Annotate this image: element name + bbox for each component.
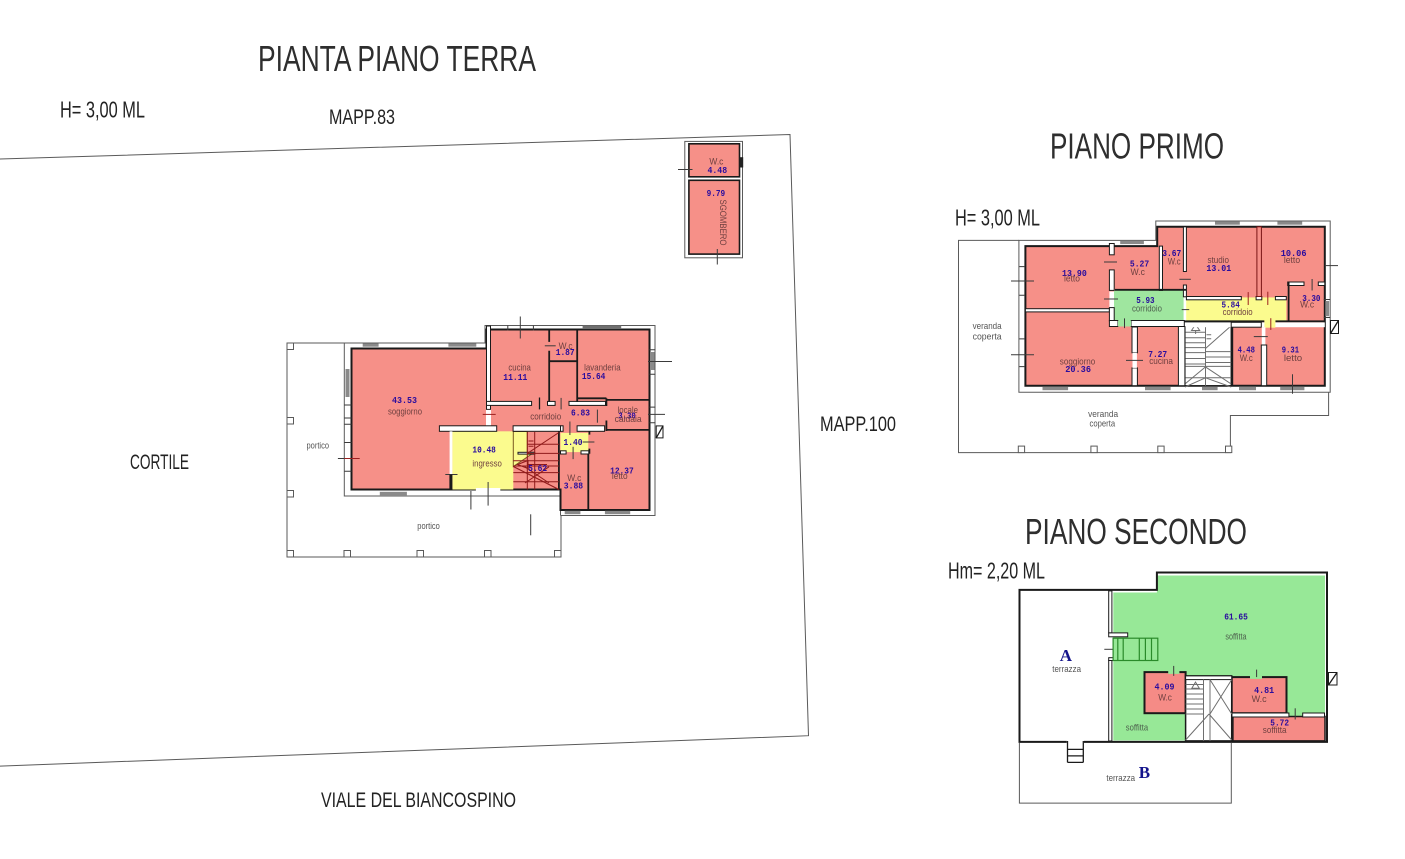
svg-text:1.87: 1.87 xyxy=(556,348,575,358)
svg-text:cucina: cucina xyxy=(508,362,531,373)
svg-text:H= 3,00 ML: H= 3,00 ML xyxy=(955,205,1040,231)
svg-text:veranda: veranda xyxy=(973,321,1003,332)
svg-text:W.c: W.c xyxy=(1168,256,1181,267)
svg-text:letto: letto xyxy=(1064,274,1080,285)
svg-text:13.01: 13.01 xyxy=(1206,264,1231,274)
svg-text:soffitta: soffitta xyxy=(1263,725,1287,736)
svg-text:9.79: 9.79 xyxy=(707,189,726,199)
svg-text:corridoio: corridoio xyxy=(1223,307,1253,318)
svg-text:portico: portico xyxy=(307,441,330,452)
svg-text:15.64: 15.64 xyxy=(582,372,606,382)
svg-text:VIALE DEL BIANCOSPINO: VIALE DEL BIANCOSPINO xyxy=(321,789,516,812)
svg-text:W.c: W.c xyxy=(1240,353,1253,364)
svg-text:corridoio: corridoio xyxy=(1132,304,1162,315)
svg-text:coperta: coperta xyxy=(973,332,1003,343)
svg-text:W.c: W.c xyxy=(1158,693,1172,704)
svg-text:W.c: W.c xyxy=(1131,267,1146,278)
svg-text:10.48: 10.48 xyxy=(472,446,496,456)
svg-text:3.88: 3.88 xyxy=(564,482,583,492)
svg-text:corridoio: corridoio xyxy=(530,412,561,423)
svg-text:PIANO PRIMO: PIANO PRIMO xyxy=(1050,126,1224,167)
svg-text:cucina: cucina xyxy=(1149,356,1173,367)
svg-text:coperta: coperta xyxy=(1090,419,1116,430)
svg-text:11.11: 11.11 xyxy=(503,373,528,383)
svg-text:letto: letto xyxy=(1284,353,1302,364)
svg-text:4.09: 4.09 xyxy=(1155,682,1175,692)
svg-text:1.40: 1.40 xyxy=(564,438,583,448)
svg-text:4.48: 4.48 xyxy=(708,166,728,176)
svg-text:caldaia: caldaia xyxy=(615,414,643,425)
svg-text:H= 3,00 ML: H= 3,00 ML xyxy=(60,97,145,123)
svg-text:SGOMBERO: SGOMBERO xyxy=(717,200,728,246)
svg-text:terrazza: terrazza xyxy=(1106,773,1135,784)
svg-text:letto: letto xyxy=(1284,255,1300,266)
svg-text:43.53: 43.53 xyxy=(392,396,417,406)
svg-text:Hm= 2,20 ML: Hm= 2,20 ML xyxy=(948,558,1045,584)
svg-text:soffitta: soffitta xyxy=(1126,723,1149,734)
svg-text:terrazza: terrazza xyxy=(1052,664,1081,675)
svg-text:soffitta: soffitta xyxy=(1225,632,1247,643)
svg-text:A: A xyxy=(1060,646,1073,665)
svg-text:W.c: W.c xyxy=(1300,299,1314,310)
svg-text:5.62: 5.62 xyxy=(528,464,547,474)
svg-text:PIANO SECONDO: PIANO SECONDO xyxy=(1025,511,1247,552)
svg-text:61.65: 61.65 xyxy=(1224,613,1248,623)
svg-text:6.83: 6.83 xyxy=(571,408,590,418)
svg-text:portico: portico xyxy=(417,521,440,532)
svg-text:B: B xyxy=(1139,763,1150,782)
svg-text:W.c: W.c xyxy=(1252,694,1267,705)
svg-text:MAPP.100: MAPP.100 xyxy=(820,413,896,436)
svg-text:PIANTA PIANO TERRA: PIANTA PIANO TERRA xyxy=(258,38,536,79)
svg-text:ingresso: ingresso xyxy=(472,459,502,470)
svg-text:letto: letto xyxy=(612,471,628,482)
svg-text:soggiorno: soggiorno xyxy=(388,407,422,418)
svg-text:CORTILE: CORTILE xyxy=(130,451,189,474)
svg-text:20.36: 20.36 xyxy=(1065,365,1091,375)
svg-text:MAPP.83: MAPP.83 xyxy=(329,106,395,129)
